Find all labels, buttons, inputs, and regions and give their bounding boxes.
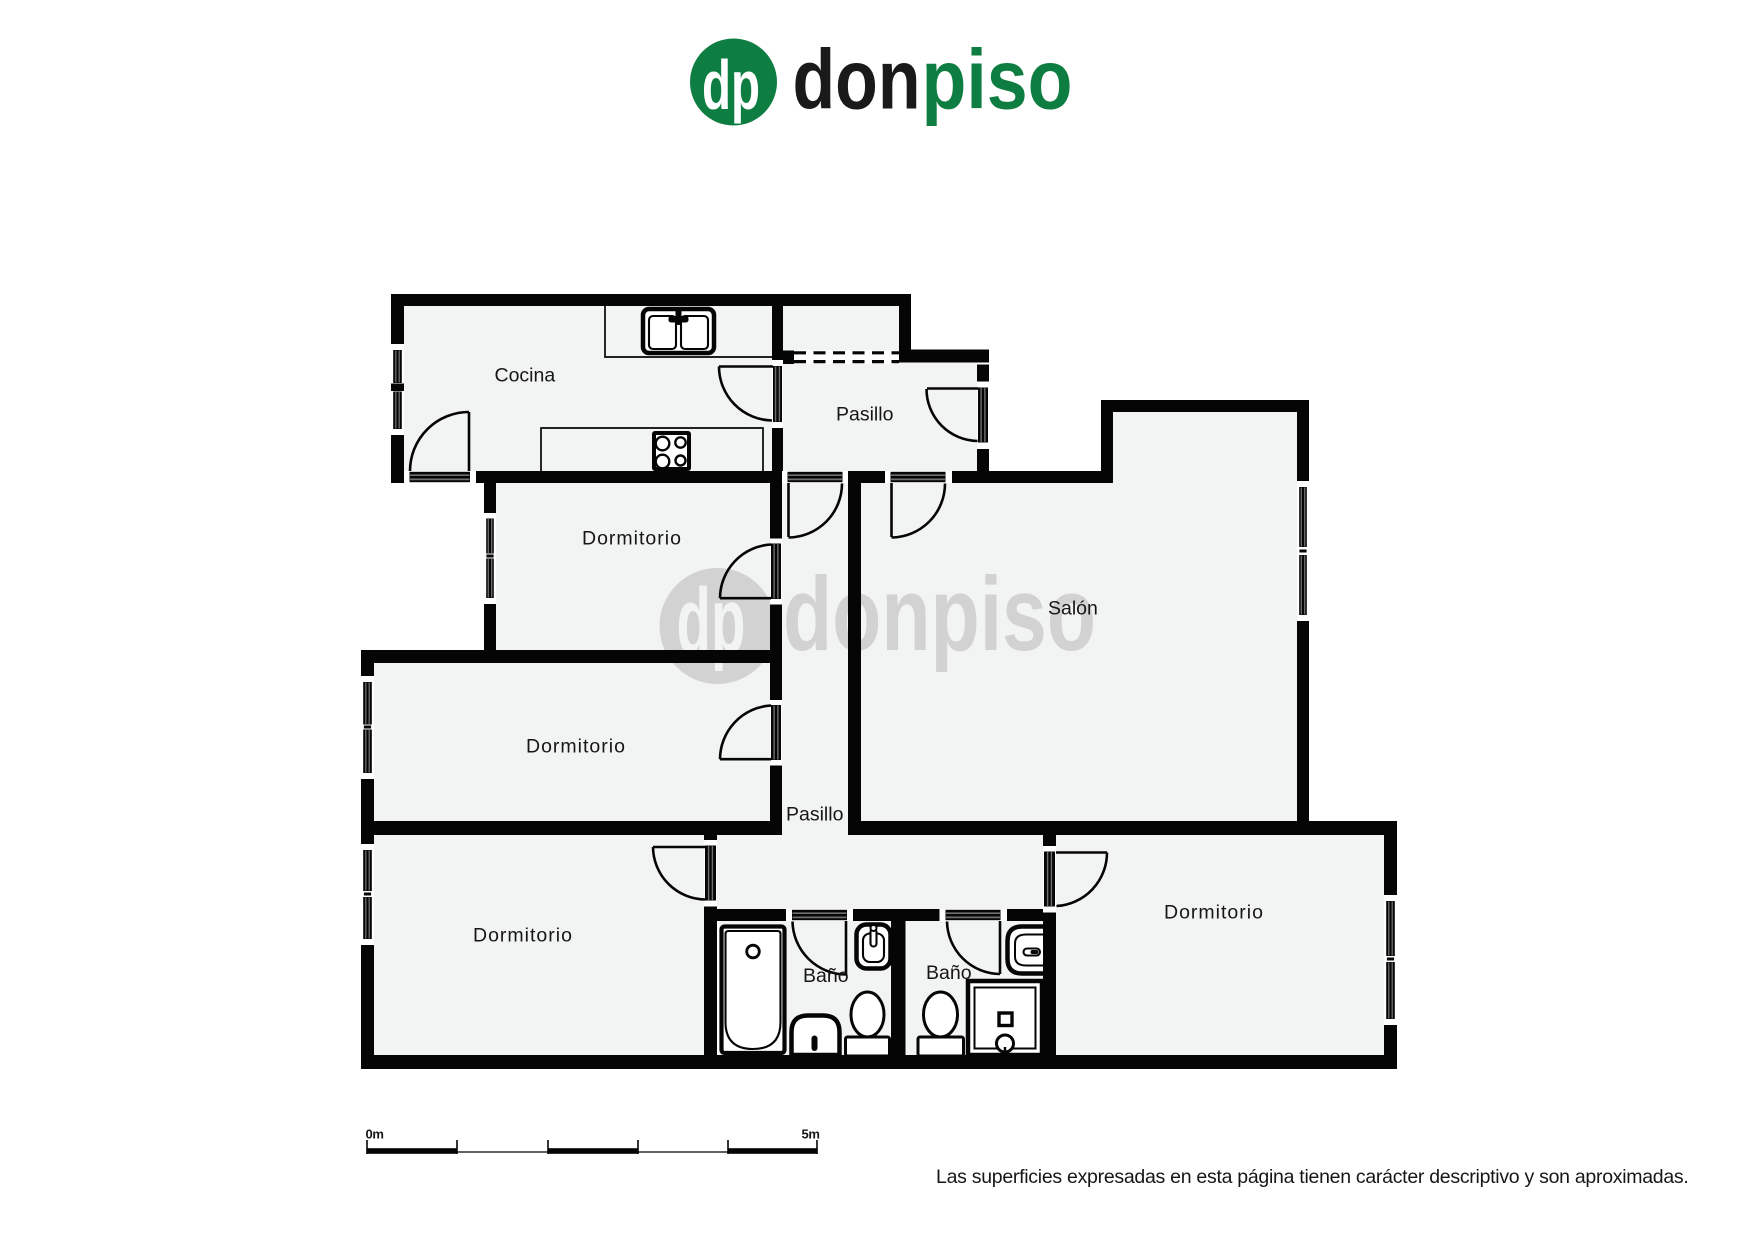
svg-text:5m: 5m [802,1127,820,1142]
svg-text:Las superficies expresadas en: Las superficies expresadas en esta págin… [936,1166,1689,1188]
svg-text:Baño: Baño [803,965,849,987]
svg-text:piso: piso [922,33,1073,127]
svg-text:Salón: Salón [1048,598,1098,620]
svg-text:Pasillo: Pasillo [786,804,844,826]
svg-text:Dormitorio: Dormitorio [473,925,573,947]
svg-text:Baño: Baño [926,962,972,984]
svg-text:Dormitorio: Dormitorio [582,528,682,550]
svg-text:Pasillo: Pasillo [836,404,894,426]
svg-text:dp: dp [702,46,760,124]
svg-text:Cocina: Cocina [495,365,556,387]
svg-text:don: don [793,33,921,127]
svg-text:Dormitorio: Dormitorio [1164,902,1264,924]
svg-text:Dormitorio: Dormitorio [526,736,626,758]
svg-text:0m: 0m [366,1127,384,1142]
